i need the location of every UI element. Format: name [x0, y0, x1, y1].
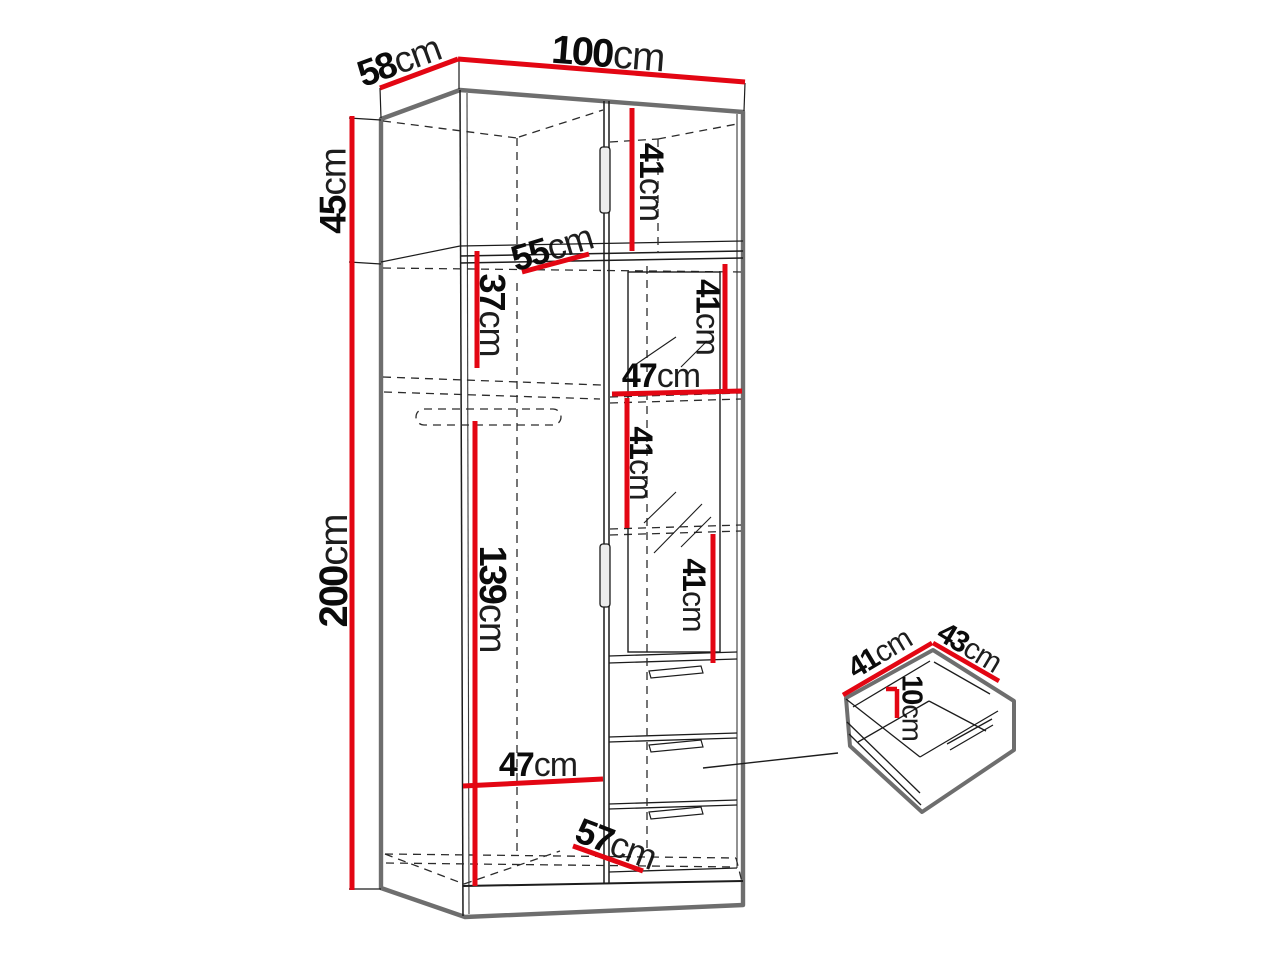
dim-unit: cm: [632, 178, 670, 221]
dim-label-37cm: 37cm: [474, 273, 510, 356]
dim-label-41cm-right: 41cm: [692, 279, 725, 355]
dim-label-41cm-mid: 41cm: [625, 426, 657, 499]
dim-value: 100: [550, 28, 615, 77]
dim-label-47cm-right: 47cm: [622, 359, 700, 393]
mirror-door-handle: [600, 544, 610, 607]
dim-value: 200: [312, 566, 356, 628]
dim-value: 37: [472, 273, 513, 310]
dim-unit: cm: [312, 514, 356, 565]
dim-label-drawer-10cm: 10cm: [897, 675, 926, 741]
dim-value: 41: [690, 279, 727, 313]
dim-unit: cm: [313, 148, 354, 195]
dim-value: 139: [471, 545, 513, 603]
dim-unit: cm: [623, 459, 659, 500]
dim-value: 10: [896, 675, 928, 704]
dim-unit: cm: [534, 746, 577, 784]
dim-unit: cm: [896, 704, 928, 741]
dim-unit: cm: [676, 591, 712, 632]
dim-label-45cm: 45cm: [315, 148, 352, 233]
wardrobe-silhouette: [381, 90, 743, 917]
dim-unit: cm: [472, 311, 513, 357]
dim-label-41cm-low: 41cm: [678, 558, 710, 631]
dim-label-41cm-top: 41cm: [634, 143, 668, 221]
dim-value: 41: [676, 558, 712, 591]
dim-unit: cm: [657, 357, 700, 395]
dim-label-139cm: 139cm: [473, 545, 511, 652]
dim-unit: cm: [611, 32, 666, 80]
dim-value: 41: [632, 143, 670, 178]
dim-value: 45: [313, 196, 354, 234]
dim-label-200cm: 200cm: [314, 514, 354, 627]
dim-unit: cm: [690, 313, 727, 355]
dimension-diagram: 58cm 100cm 45cm 200cm 41cm 55cm 37cm 41c…: [0, 0, 1280, 960]
wardrobe-body: [381, 90, 743, 917]
dim-unit: cm: [471, 604, 513, 653]
dim-label-100cm: 100cm: [550, 30, 666, 79]
dim-value: 47: [499, 746, 534, 784]
dim-label-47cm-left: 47cm: [499, 748, 577, 782]
upper-door-handle: [600, 147, 610, 213]
dim-value: 41: [623, 426, 659, 459]
dim-value: 47: [622, 357, 657, 395]
